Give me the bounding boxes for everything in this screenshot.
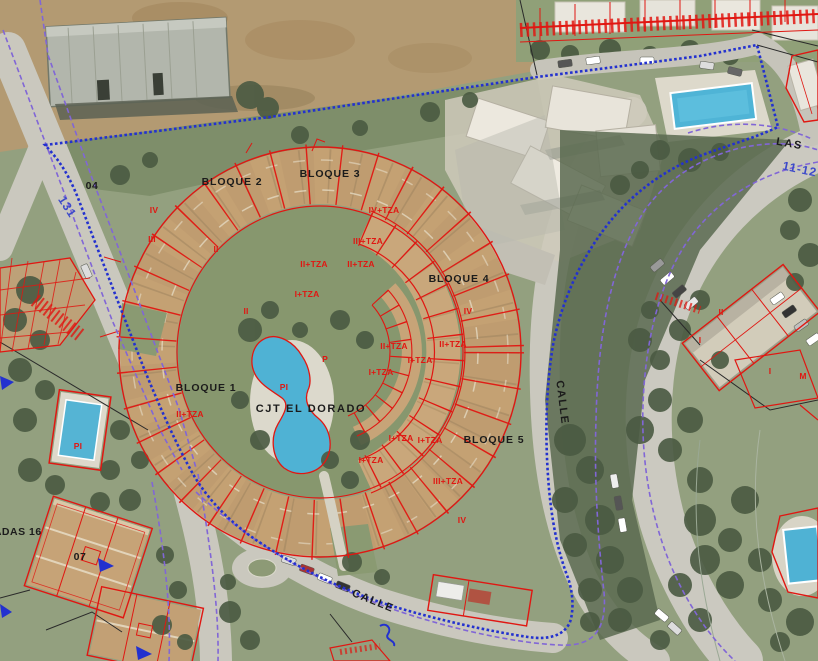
map-label: M [799, 371, 806, 381]
cadastral-map-viewport[interactable]: BLOQUE 2BLOQUE 3BLOQUE 4BLOQUE 1BLOQUE 5… [0, 0, 818, 661]
map-label: II+TZA [380, 341, 407, 351]
map-label: II+TZA [439, 339, 466, 349]
map-label: I [769, 366, 772, 376]
map-label: BLOQUE 3 [300, 168, 361, 180]
map-label: II+TZA [347, 259, 374, 269]
map-label: III [148, 234, 156, 244]
map-label: II [213, 244, 218, 254]
map-canvas[interactable]: BLOQUE 2BLOQUE 3BLOQUE 4BLOQUE 1BLOQUE 5… [0, 0, 818, 661]
map-label: II+TZA [176, 409, 203, 419]
map-label: II+TZA [300, 259, 327, 269]
map-label: I [699, 335, 702, 345]
pool-bottom-right [783, 526, 818, 583]
map-label: I+TZA [359, 455, 384, 465]
map-label: I+TZA [418, 435, 443, 445]
map-label: GRUPADAS 16 [0, 526, 42, 538]
map-label: I+TZA [295, 289, 320, 299]
map-label: II [243, 306, 248, 316]
map-label: I+TZA [389, 433, 414, 443]
map-label: III+TZA [353, 236, 383, 246]
map-label: BLOQUE 4 [429, 273, 490, 285]
map-label: I+TZA [369, 367, 394, 377]
pool-left [51, 392, 108, 468]
map-label: BLOQUE 5 [464, 434, 525, 446]
map-label: III+TZA [433, 476, 463, 486]
map-label: PI [74, 441, 82, 451]
map-label: BLOQUE 2 [202, 176, 263, 188]
map-label: P [322, 354, 328, 364]
map-label: IV [464, 306, 473, 316]
map-label: 04 [86, 180, 99, 192]
map-label: IV+TZA [369, 205, 400, 215]
map-label: PI [280, 382, 288, 392]
map-label: CJT EL DORADO [256, 403, 366, 415]
map-label: IV [150, 205, 159, 215]
map-label: BLOQUE 1 [176, 382, 237, 394]
industrial-building [46, 17, 230, 106]
map-label: 07 [74, 551, 87, 563]
pool-top-right [655, 70, 772, 142]
map-label: I+TZA [408, 355, 433, 365]
map-label: II [718, 307, 723, 317]
map-label: IV [458, 515, 467, 525]
